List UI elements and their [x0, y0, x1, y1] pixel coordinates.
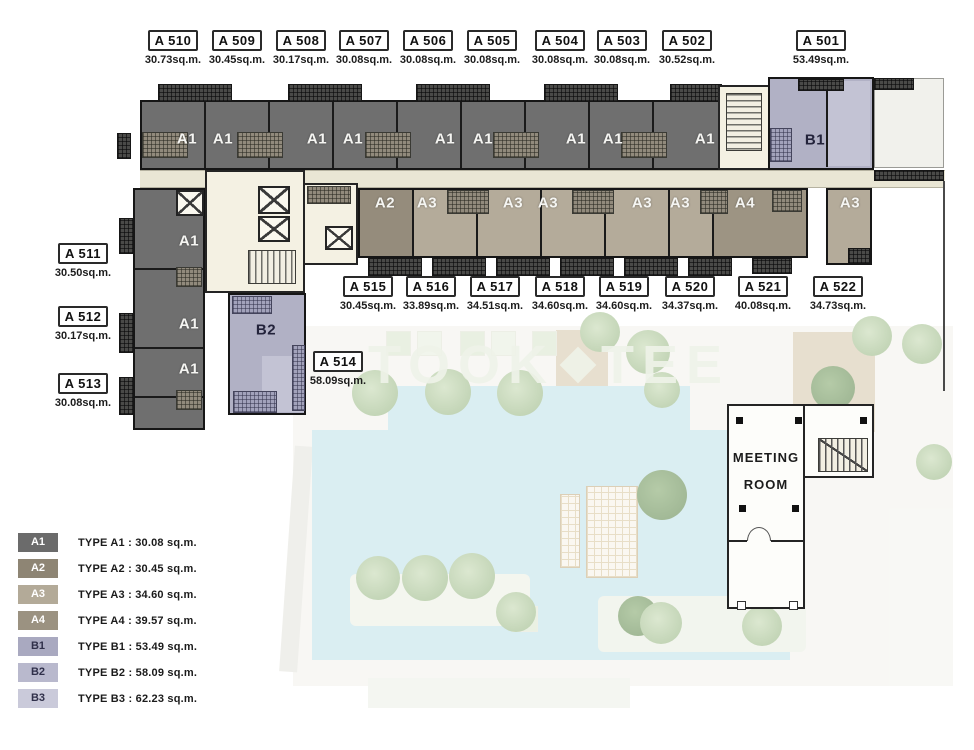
column: [736, 417, 743, 424]
balcony: [416, 84, 490, 102]
door-frame: [737, 601, 746, 610]
type-mark: A1: [343, 131, 363, 148]
boundary-line: [943, 181, 945, 391]
type-mark: A1: [213, 131, 233, 148]
column: [860, 417, 867, 424]
balcony: [288, 84, 362, 102]
terrace: [874, 78, 944, 168]
bathroom: [772, 190, 802, 212]
column: [795, 417, 802, 424]
unit-area: 30.45sq.m.: [202, 54, 272, 66]
type-mark: B1: [805, 132, 825, 149]
tree: [402, 555, 448, 601]
unit-number: A 522: [813, 276, 864, 297]
type-mark: A3: [503, 195, 523, 212]
unit-label: A 513 30.08sq.m.: [48, 373, 118, 409]
unit-label: A 507 30.08sq.m.: [329, 30, 399, 66]
type-mark: A3: [840, 195, 860, 212]
unit-number: A 501: [796, 30, 847, 51]
tooktee-watermark: TOOK TEE: [368, 334, 730, 396]
balcony: [798, 79, 844, 91]
unit-label: A 508 30.17sq.m.: [266, 30, 336, 66]
unit-number: A 516: [406, 276, 457, 297]
tree: [637, 470, 687, 520]
unit-area: 30.50sq.m.: [48, 267, 118, 279]
top-wing: [140, 100, 772, 170]
bathroom: [176, 390, 202, 410]
unit-area: 30.73sq.m.: [138, 54, 208, 66]
unit-area: 34.37sq.m.: [655, 300, 725, 312]
unit-area: 30.08sq.m.: [587, 54, 657, 66]
legend-label: TYPE B3 : 62.23 sq.m.: [78, 693, 197, 705]
unit-label: A 511 30.50sq.m.: [48, 243, 118, 279]
unit-area: 34.51sq.m.: [460, 300, 530, 312]
stairs-icon: [818, 438, 868, 472]
unit-label: A 515 30.45sq.m.: [333, 276, 403, 312]
unit-label: A 504 30.08sq.m.: [525, 30, 595, 66]
unit-area: 58.09sq.m.: [303, 375, 373, 387]
unit-label: A 501 53.49sq.m.: [786, 30, 856, 66]
unit-area: 30.08sq.m.: [329, 54, 399, 66]
legend-row: B2 TYPE B2 : 58.09 sq.m.: [18, 663, 197, 682]
balcony: [119, 313, 134, 353]
unit-number: A 506: [403, 30, 454, 51]
type-mark: A1: [473, 131, 493, 148]
balcony: [158, 84, 232, 102]
legend-swatch: B3: [18, 689, 58, 708]
unit-label: A 517 34.51sq.m.: [460, 276, 530, 312]
bathroom: [572, 190, 614, 214]
type-mark: A1: [435, 131, 455, 148]
legend-label: TYPE A2 : 30.45 sq.m.: [78, 563, 197, 575]
legend-row: B1 TYPE B1 : 53.49 sq.m.: [18, 637, 197, 656]
unit-label: A 522 34.73sq.m.: [803, 276, 873, 312]
legend-row: A1 TYPE A1 : 30.08 sq.m.: [18, 533, 197, 552]
unit-area: 30.08sq.m.: [48, 397, 118, 409]
legend-swatch: A1: [18, 533, 58, 552]
watermark-text: TOOK: [368, 334, 555, 396]
unit-number: A 517: [470, 276, 521, 297]
boundary-wall: [874, 170, 944, 181]
bathroom: [365, 132, 411, 158]
pool-lounge-bed: [560, 494, 580, 568]
elevator-icon: [176, 190, 204, 216]
balcony: [560, 258, 614, 276]
unit-number: A 515: [343, 276, 394, 297]
type-mark: A1: [179, 316, 199, 333]
unit-number: A 507: [339, 30, 390, 51]
bathroom: [700, 190, 728, 214]
unit-number: A 512: [58, 306, 109, 327]
balcony: [119, 218, 134, 254]
unit-area: 30.08sq.m.: [393, 54, 463, 66]
bathroom: [176, 267, 202, 287]
stairs-icon: [726, 93, 762, 151]
balcony: [119, 377, 134, 415]
legend-label: TYPE A1 : 30.08 sq.m.: [78, 537, 197, 549]
tree: [852, 316, 892, 356]
bathroom: [237, 132, 283, 158]
unit-label: A 520 34.37sq.m.: [655, 276, 725, 312]
type-mark: A4: [735, 195, 755, 212]
unit-label: A 506 30.08sq.m.: [393, 30, 463, 66]
unit-number: A 514: [313, 351, 364, 372]
unit-type-legend: A1 TYPE A1 : 30.08 sq.m. A2 TYPE A2 : 30…: [18, 533, 197, 715]
unit-label: A 521 40.08sq.m.: [728, 276, 798, 312]
tree: [356, 556, 400, 600]
legend-swatch: A3: [18, 585, 58, 604]
legend-label: TYPE B1 : 53.49 sq.m.: [78, 641, 197, 653]
hedge: [368, 678, 630, 708]
tree: [902, 324, 942, 364]
unit-area: 34.73sq.m.: [803, 300, 873, 312]
type-mark: A1: [177, 131, 197, 148]
type-mark: A1: [603, 131, 623, 148]
legend-row: A3 TYPE A3 : 34.60 sq.m.: [18, 585, 197, 604]
unit-number: A 511: [58, 243, 108, 264]
unit-number: A 508: [276, 30, 327, 51]
unit-area: 40.08sq.m.: [728, 300, 798, 312]
balcony: [624, 258, 678, 276]
unit-label: A 512 30.17sq.m.: [48, 306, 118, 342]
type-mark: A3: [417, 195, 437, 212]
tree: [496, 592, 536, 632]
tree: [640, 602, 682, 644]
unit-label: A 519 34.60sq.m.: [589, 276, 659, 312]
unit-label: A 505 30.08sq.m.: [457, 30, 527, 66]
unit-label: A 514 58.09sq.m.: [303, 351, 373, 387]
door-frame: [789, 601, 798, 610]
type-mark: A1: [179, 233, 199, 250]
bathroom: [117, 133, 131, 159]
unit-label: A 502 30.52sq.m.: [652, 30, 722, 66]
meeting-room-label: MEETING: [727, 450, 805, 465]
balcony: [432, 258, 486, 276]
type-mark: A1: [695, 131, 715, 148]
diamond-icon: [560, 347, 597, 384]
unit-number: A 513: [58, 373, 109, 394]
type-mark: A2: [375, 195, 395, 212]
pool-lounge-bed: [586, 486, 638, 578]
legend-label: TYPE A4 : 39.57 sq.m.: [78, 615, 197, 627]
unit-number: A 519: [599, 276, 650, 297]
column: [739, 505, 746, 512]
unit-area: 34.60sq.m.: [525, 300, 595, 312]
unit-number: A 509: [212, 30, 263, 51]
type-mark: A1: [566, 131, 586, 148]
legend-swatch: B1: [18, 637, 58, 656]
unit-number: A 518: [535, 276, 586, 297]
type-mark: A3: [670, 195, 690, 212]
bathroom: [493, 132, 539, 158]
balcony: [368, 258, 422, 276]
unit-area: 30.08sq.m.: [525, 54, 595, 66]
legend-swatch: A2: [18, 559, 58, 578]
unit-label: A 509 30.45sq.m.: [202, 30, 272, 66]
tree: [742, 606, 782, 646]
bathroom: [447, 190, 489, 214]
balcony: [688, 258, 732, 276]
watermark-text: TEE: [601, 334, 730, 396]
type-mark: A3: [538, 195, 558, 212]
bathroom: [621, 132, 667, 158]
legend-row: A2 TYPE A2 : 30.45 sq.m.: [18, 559, 197, 578]
unit-number: A 510: [148, 30, 199, 51]
stairs-icon: [248, 250, 296, 284]
legend-swatch: B2: [18, 663, 58, 682]
legend-label: TYPE B2 : 58.09 sq.m.: [78, 667, 197, 679]
legend-row: A4 TYPE A4 : 39.57 sq.m.: [18, 611, 197, 630]
type-mark: A1: [307, 131, 327, 148]
unit-area: 34.60sq.m.: [589, 300, 659, 312]
unit-number: A 521: [738, 276, 789, 297]
unit-number: A 503: [597, 30, 648, 51]
floor-plan-canvas: TOOK TEE: [0, 0, 974, 750]
type-mark: A3: [632, 195, 652, 212]
balcony: [233, 391, 277, 413]
unit-area: 53.49sq.m.: [786, 54, 856, 66]
balcony: [752, 258, 792, 274]
type-mark: A1: [179, 361, 199, 378]
bathroom: [770, 128, 792, 162]
elevator-icon: [258, 216, 290, 242]
unit-number: A 502: [662, 30, 713, 51]
tree: [449, 553, 495, 599]
column: [792, 505, 799, 512]
balcony: [544, 84, 618, 102]
legend-row: B3 TYPE B3 : 62.23 sq.m.: [18, 689, 197, 708]
unit-area: 30.08sq.m.: [457, 54, 527, 66]
unit-label: A 503 30.08sq.m.: [587, 30, 657, 66]
unit-label: A 516 33.89sq.m.: [396, 276, 466, 312]
balcony: [670, 84, 722, 102]
elevator-icon: [325, 226, 353, 250]
tree: [916, 444, 952, 480]
unit-number: A 505: [467, 30, 518, 51]
legend-swatch: A4: [18, 611, 58, 630]
meeting-room-label: ROOM: [727, 477, 805, 492]
unit-area: 30.52sq.m.: [652, 54, 722, 66]
balcony: [496, 258, 550, 276]
balcony: [848, 248, 870, 264]
unit-number: A 504: [535, 30, 586, 51]
unit-area: 30.45sq.m.: [333, 300, 403, 312]
balcony: [232, 296, 272, 314]
unit-area: 33.89sq.m.: [396, 300, 466, 312]
unit-area: 30.17sq.m.: [266, 54, 336, 66]
unit-area: 30.17sq.m.: [48, 330, 118, 342]
unit-number: A 520: [665, 276, 716, 297]
unit-label: A 518 34.60sq.m.: [525, 276, 595, 312]
type-mark: B2: [256, 322, 276, 339]
elevator-icon: [258, 186, 290, 214]
unit-label: A 510 30.73sq.m.: [138, 30, 208, 66]
legend-label: TYPE A3 : 34.60 sq.m.: [78, 589, 197, 601]
